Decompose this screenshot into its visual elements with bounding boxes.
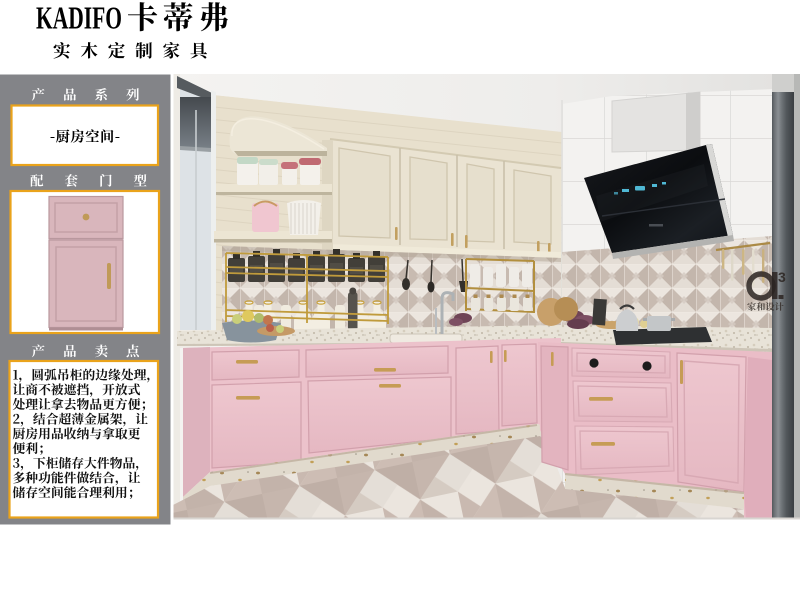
- svg-text:KADIFO: KADIFO: [36, 0, 122, 36]
- svg-text:3: 3: [778, 269, 786, 285]
